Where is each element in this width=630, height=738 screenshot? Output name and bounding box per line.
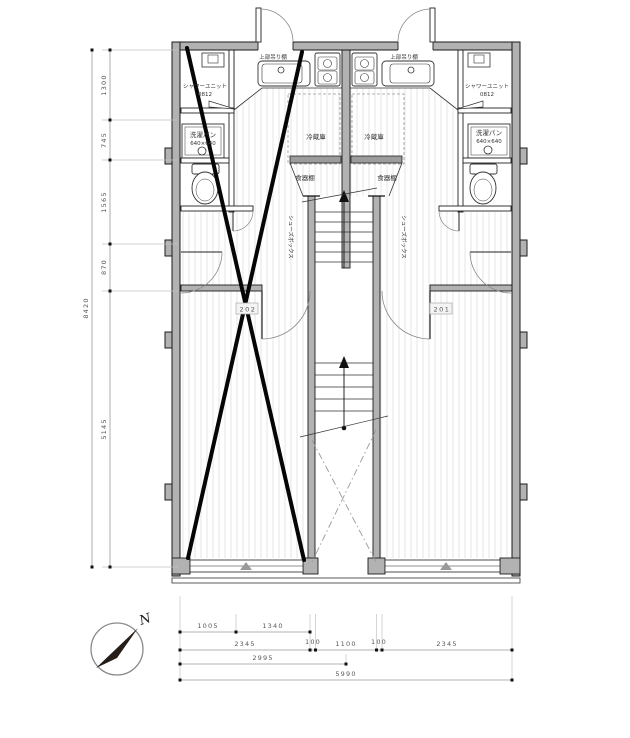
balcony-edge [172,578,520,583]
dim-bottom-r2-3: 1100 [335,640,356,648]
dim-bottom-r2-2: 100 [305,638,321,646]
shower-fixture-right [468,53,490,67]
outer-wall-left [172,42,180,576]
washer-size-left: 640×640 [190,141,216,147]
shoebox-label-left: シューズボックス [287,215,295,259]
shower-fixture-left [202,53,224,67]
stove-right [352,53,377,86]
kitchen-sink-left [258,61,310,86]
floor-plan-drawing: 上部吊り棚 上部吊り棚 冷蔵庫 冷蔵庫 食器棚 食器棚 シューズボックス シュー… [0,0,630,738]
burner-icon [361,74,369,82]
shoebox-label-right: シューズボックス [400,215,408,259]
hanging-shelf-label-right: 上部吊り棚 [390,53,418,61]
pilaster [520,240,527,256]
pilaster [520,148,527,164]
fridge-label-right: 冷蔵庫 [364,132,384,141]
toilet-right [470,164,497,204]
shower-label-left: シャワーユニット [183,83,227,90]
room-number-left: 202 [240,306,257,314]
dim-bottom-r1-1: 1005 [197,622,218,630]
faucet-icon [278,67,284,73]
drain-icon [484,146,492,154]
outer-wall-top [172,42,520,50]
compass: N [91,611,154,675]
dim-bottom-overall: 5990 [335,670,356,678]
pilaster [165,240,172,256]
pilaster [520,484,527,500]
burner-icon [324,60,332,68]
kitchen-sink-right [382,61,434,86]
faucet-icon [408,67,414,73]
washer-label-right: 洗濯パン [476,128,502,137]
dim-vertical-1: 1300 [100,74,108,95]
hall-wall-right [430,285,512,291]
shower-label-right: シャワーユニット [465,83,509,90]
center-party-wall [342,50,350,268]
burner-icon [324,74,332,82]
pilaster [165,484,172,500]
dim-vertical-3: 1565 [100,191,108,212]
cupboard-right [351,156,402,163]
outer-wall-right [512,42,520,576]
dim-vertical-overall: 8420 [82,297,90,318]
pilaster [165,332,172,348]
pilaster [520,332,527,348]
entry-door-swing-left [261,9,293,42]
washer-size-right: 640×640 [476,139,502,145]
shower-size-left: 0812 [198,92,212,98]
dim-vertical-2: 745 [100,132,108,148]
entry-door-leaf-right [430,8,435,42]
pilaster [165,148,172,164]
cupboard-label-right: 食器棚 [377,173,397,182]
dim-vertical-5: 5145 [100,418,108,439]
fridge-label-left: 冷蔵庫 [306,132,326,141]
drain-icon [198,147,206,155]
dim-bottom-r2-4: 100 [371,638,387,646]
cupboard-left [290,156,341,163]
washer-label-left: 洗濯パン [190,130,216,139]
dimension-bottom: 1005 1340 2345 100 1100 100 2345 2995 59… [179,596,514,682]
stair-wall-right [373,196,380,564]
shower-size-right: 0812 [480,92,494,98]
entry-door-swing-right [398,9,430,42]
dim-bottom-r3: 2995 [252,654,273,662]
hanging-shelf-label-left: 上部吊り棚 [259,53,287,61]
burner-icon [361,60,369,68]
entry-door-leaf-left [256,8,261,42]
dim-bottom-r2-5: 2345 [436,640,457,648]
stair-wall-left [308,196,315,564]
room-number-right: 201 [434,306,451,314]
dimension-left: 1300 745 1565 870 5145 8420 [82,49,178,569]
cupboard-label-left: 食器棚 [295,173,315,182]
dim-vertical-4: 870 [100,259,108,275]
floor-plan-page: 上部吊り棚 上部吊り棚 冷蔵庫 冷蔵庫 食器棚 食器棚 シューズボックス シュー… [0,0,630,738]
dim-bottom-r2-1: 2345 [234,640,255,648]
stove-left [315,53,340,86]
north-label: N [137,611,154,629]
dim-bottom-r1-2: 1340 [262,622,283,630]
